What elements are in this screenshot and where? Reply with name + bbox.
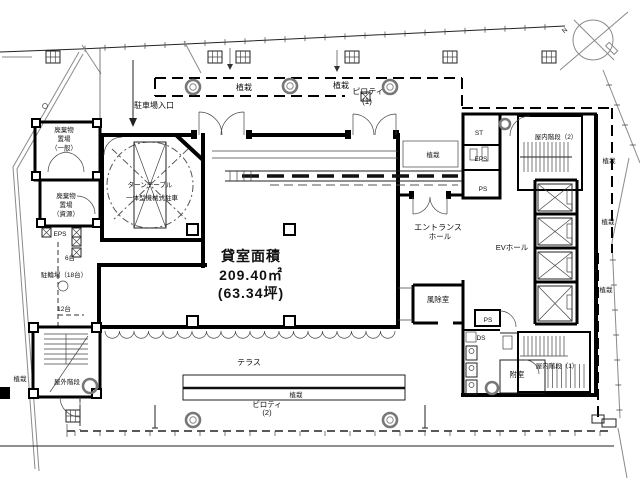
tree-icon [186,413,200,427]
ds-label: DS [476,335,486,342]
ps-label: PS [479,186,488,193]
ev-hall-label: EVホール [496,243,529,252]
parking-entrance-label: 駐車場入口 [134,100,174,110]
piloti1-boundary [462,78,612,253]
planting-label: 植栽 [14,374,28,383]
planting-label: 植栽 [290,390,304,399]
north-label: N [561,26,569,35]
turntable-label-1: ターンテーブル [128,180,173,189]
tree-icon [383,413,397,427]
tree-icon [186,80,200,94]
waste-storage-recycle: 廃棄物 置場 （資源） [37,180,101,227]
entrance-hall-label-2: ホール [429,232,452,241]
entrance-hall-label-1: エントランス [414,223,462,232]
planting-label: 植栽 [333,80,349,90]
tree-icon [283,79,297,93]
planting-label: 植栽 [236,82,252,92]
planting-label: 植栽 [600,285,614,294]
waste-recycle-line3: （資源） [53,209,79,218]
bike-6-label: 6台 [65,253,75,262]
approach-walkway [225,171,463,185]
outdoor-stair: 屋外階段 植栽 [0,323,101,430]
piloti1-label: ピロティ [352,87,384,96]
rental-room: 貸室面積 209.40㎡ (63.34坪) [97,112,400,338]
windbreak-room: 風除室 [398,285,463,323]
shaft-box-icon [72,228,81,237]
rental-area-title: 貸室面積 [220,248,281,264]
planting-label: 植栽 [427,150,441,159]
tree-grate-icon [542,51,556,63]
ps2-label: PS [484,317,493,324]
toilet-icon [466,363,477,377]
turntable-label-2: 一体型機械式駐車 [126,193,179,202]
floor-plan-page: N 植栽 植栽 ピロティ (1) 駐車場入口 [0,0,640,480]
shaft-box-icon [72,237,81,246]
waste-general-line2: 置場 [58,134,72,143]
waste-storage-general: 廃棄物 置場 （一般） [32,119,101,180]
toilet-icon [466,380,477,394]
planting-label: 植栽 [603,156,617,165]
planter-north: 植栽 [403,141,458,167]
tree-icon [383,80,397,94]
indoor-stair-1: 屋内階段（1） [518,332,590,392]
planting-label: 植栽 [602,217,616,226]
windbreak-label: 風除室 [427,294,450,304]
tree-grate-icon [208,51,222,63]
service-shafts: ST EPS PS [463,114,510,198]
waste-general-line3: （一般） [51,143,77,152]
tree-grate-icon [66,410,80,422]
st-label: ST [475,130,483,137]
bike-capacity-label: 駐輪場（18台） [41,270,87,279]
terrace-area: テラス 植栽 ピロティ (2) [152,358,428,428]
piloti1-number: (1) [362,97,372,106]
shaft-box-icon [42,228,51,237]
indoor-stair2-label: 屋内階段（2） [535,132,578,141]
toilet-icon [466,346,477,360]
tree-grate-icon [46,51,60,63]
eps-left-label: EPS [53,231,67,238]
north-compass-icon: N [560,12,628,70]
bike-12-label: 12台 [57,304,71,313]
entrance-hall: エントランス ホール [398,191,463,241]
eps-label: EPS [474,156,488,163]
restroom-area: PS DS [463,310,516,394]
site-boundary [0,24,640,478]
bicycle-parking: 6台 駐輪場（18台） 12台 [41,237,87,328]
tree-grate-icon [345,51,359,63]
terrace-label: テラス [237,358,261,367]
waste-recycle-line2: 置場 [60,200,74,209]
outdoor-stair-label: 屋外階段 [54,377,81,386]
rental-area-m2: 209.40㎡ [219,267,283,283]
indoor-stair1-label: 屋内階段（1） [536,361,579,370]
piloti2-number: (2) [262,408,272,417]
tree-grate-icon [236,51,250,63]
rental-area-tsubo: (63.34坪) [218,285,284,301]
floor-plan-drawing: N 植栽 植栽 ピロティ (1) 駐車場入口 [0,0,640,480]
waste-recycle-line1: 廃棄物 [56,191,76,200]
tree-grate-icon [443,51,457,63]
waste-general-line1: 廃棄物 [54,125,74,134]
elevator-bank: EVホール [496,180,577,324]
planting-strip-top: 植栽 植栽 ピロティ (1) [155,78,462,106]
tree-grates [46,48,556,72]
